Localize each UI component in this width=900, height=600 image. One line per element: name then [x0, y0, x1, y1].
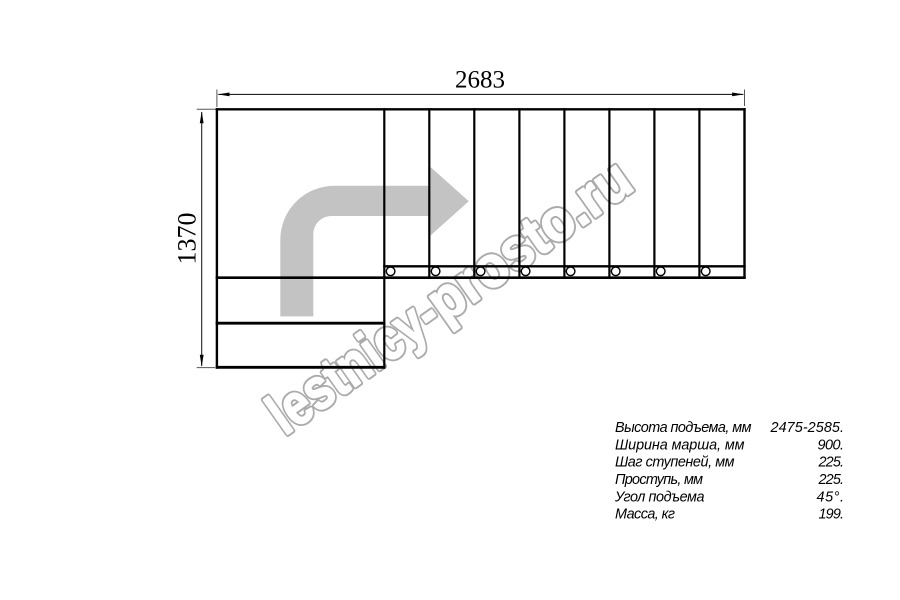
svg-text:2475-2585.: 2475-2585. [770, 420, 845, 436]
svg-text:Масса, кг: Масса, кг [615, 507, 675, 523]
svg-text:Высота подъема, мм: Высота подъема, мм [615, 420, 752, 436]
svg-text:45°.: 45°. [817, 489, 845, 505]
svg-text:Ширина марша, мм: Ширина марша, мм [615, 437, 745, 453]
svg-text:Угол подъема: Угол подъема [614, 489, 705, 505]
svg-text:199.: 199. [819, 507, 845, 523]
svg-text:Шаг ступеней, мм: Шаг ступеней, мм [615, 455, 735, 471]
svg-text:1370: 1370 [173, 213, 202, 265]
svg-text:225.: 225. [818, 472, 845, 488]
svg-text:225.: 225. [818, 455, 845, 471]
svg-text:900.: 900. [818, 437, 845, 453]
svg-text:2683: 2683 [455, 67, 505, 94]
svg-text:Проступь, мм: Проступь, мм [615, 472, 703, 488]
